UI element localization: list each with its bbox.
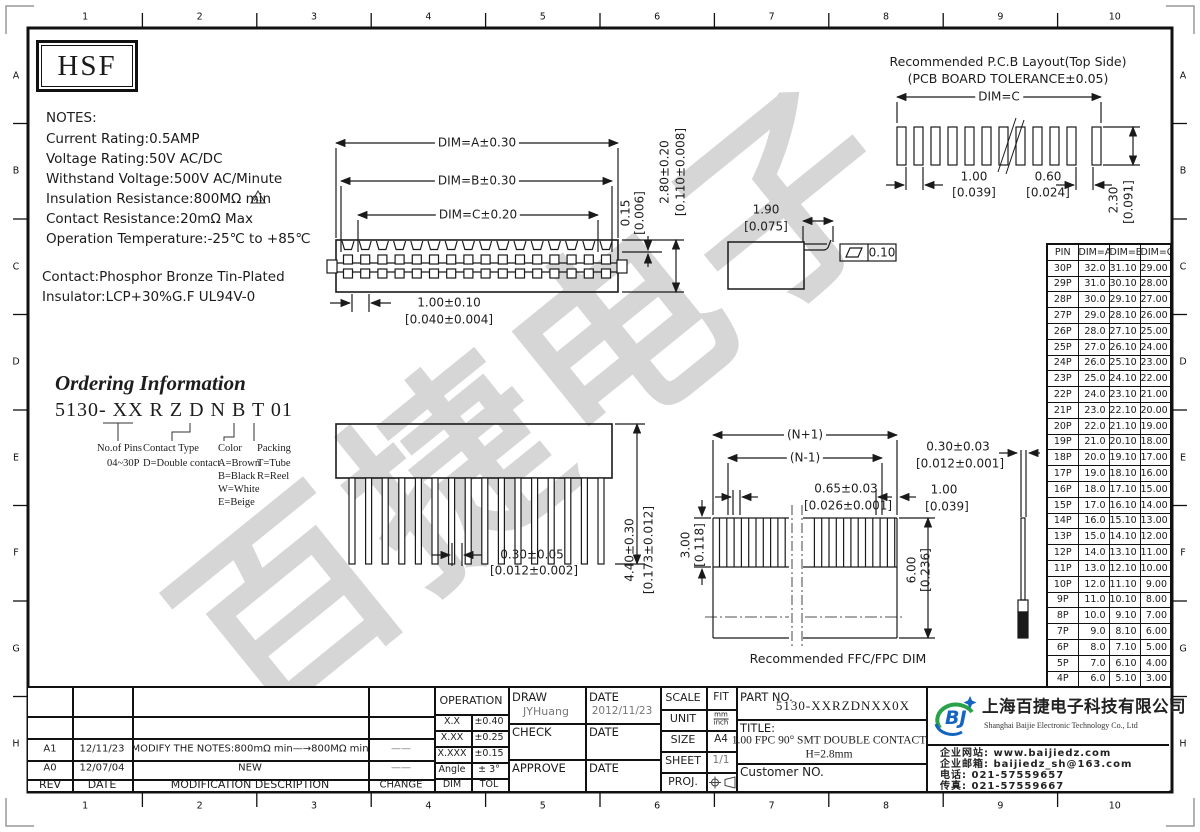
company-fax: 传真: 021-57559667 xyxy=(940,781,1064,792)
pin-dim-cell: 18.0 xyxy=(1078,481,1109,497)
pin-table-body: PINDIM=ADIM=BDIM=C30P32.031.1029.0029P31… xyxy=(1047,244,1171,687)
pin-dim-cell: 7.0 xyxy=(1078,655,1109,671)
pin-count-cell: 15P xyxy=(1047,497,1078,513)
draw-name: JYHuang xyxy=(523,706,569,718)
hsf-logo-text: HSF xyxy=(41,45,133,87)
scale-label: SCALE xyxy=(665,692,700,704)
pin-count-cell: 25P xyxy=(1047,339,1078,355)
pitch-dim-label: 1.00±0.10 xyxy=(417,296,481,309)
rev-header-change: CHANGE xyxy=(380,780,423,791)
customer-no-label: Customer NO. xyxy=(740,766,824,779)
pin-dim-cell: 7.10 xyxy=(1109,639,1140,655)
ordering-contact-label: Contact Type xyxy=(143,443,199,455)
pin-dim-cell: 16.0 xyxy=(1078,513,1109,529)
material-insulator: Insulator:LCP+30%G.F UL94V-0 xyxy=(42,290,255,305)
note-rev-marker: A1 xyxy=(254,196,263,203)
company-logo-icon: BJ xyxy=(932,694,978,738)
pin-dim-cell: 13.0 xyxy=(1078,560,1109,576)
pin-dim-cell: 14.0 xyxy=(1078,545,1109,561)
ordering-color-a: A=Brown xyxy=(218,458,260,470)
pin-dim-cell: 23.0 xyxy=(1078,402,1109,418)
pin-table-row: 6P8.07.105.00 xyxy=(1047,639,1171,655)
ffc-caption: Recommended FFC/FPC DIM xyxy=(750,652,927,666)
rev-a1-id: A1 xyxy=(43,744,56,755)
pin-dim-cell: 11.10 xyxy=(1109,576,1140,592)
pin-dim-cell: 18.00 xyxy=(1140,434,1171,450)
top-view-drawing xyxy=(327,143,684,312)
tol-xxxx-label: X.XXX xyxy=(437,749,466,759)
ordering-contact-value: D=Double contact xyxy=(143,458,220,470)
pcb-width-label: 0.60 xyxy=(1035,170,1062,183)
front-height-label: 4.40±0.30 xyxy=(623,518,636,582)
note-line: Withstand Voltage:500V AC/Minute xyxy=(46,171,282,187)
notes-title: NOTES: xyxy=(46,111,97,126)
note-line: Current Rating:0.5AMP xyxy=(46,131,200,147)
ffc-margin-inch-label: [0.039] xyxy=(925,500,969,513)
pin-count-cell: 14P xyxy=(1047,513,1078,529)
ffc-margin-label: 1.00 xyxy=(931,483,958,496)
rev-a1-change: —— xyxy=(391,744,411,755)
pin-table-row: 5P7.06.104.00 xyxy=(1047,655,1171,671)
pin-dim-cell: 6.10 xyxy=(1109,655,1140,671)
size-label: SIZE xyxy=(671,734,696,746)
pin-dim-cell: 28.00 xyxy=(1140,276,1171,292)
pin-count-cell: 5P xyxy=(1047,655,1078,671)
ffc-exposed-label: 3.00 xyxy=(679,532,692,559)
draw-label: DRAW xyxy=(512,691,547,704)
ffc-pitch-label: 0.65±0.03 xyxy=(814,482,878,495)
pin-dim-cell: 24.00 xyxy=(1140,339,1171,355)
pin-dim-cell: 30.10 xyxy=(1109,276,1140,292)
pin-dim-cell: 8.0 xyxy=(1078,639,1109,655)
ordering-code: 5130- XX R Z D N B T 01 xyxy=(55,399,293,421)
rev-header-rev: REV xyxy=(39,779,61,791)
ordering-color-w: W=White xyxy=(218,484,260,496)
rev-a0-change: —— xyxy=(391,763,411,774)
pin-table-row: 27P29.028.1026.00 xyxy=(1047,308,1171,324)
pin-count-cell: 19P xyxy=(1047,434,1078,450)
pin-dim-cell: 20.10 xyxy=(1109,434,1140,450)
pin-dim-cell: 26.00 xyxy=(1140,308,1171,324)
title-line-2: H=2.8mm xyxy=(805,749,852,762)
pin-dim-cell: 19.0 xyxy=(1078,466,1109,482)
pitch-dim-inch-label: [0.040±0.004] xyxy=(405,313,493,326)
ordering-pins-value: 04~30P xyxy=(107,458,140,470)
unit-inch: inch xyxy=(714,719,729,727)
projection-label: PROJ. xyxy=(668,776,698,788)
height-dim-inch-label: [0.110±0.008] xyxy=(674,128,687,216)
pcb-title-2: (PCB BOARD TOLERANCE±0.05) xyxy=(908,72,1109,86)
pcb-title-1: Recommended P.C.B Layout(Top Side) xyxy=(890,55,1127,69)
pin-dim-cell: 28.0 xyxy=(1078,323,1109,339)
sheet-value: 1/1 xyxy=(713,755,730,767)
ordering-color-label: Color xyxy=(218,443,242,455)
pin-dim-cell: 17.00 xyxy=(1140,450,1171,466)
pin-table-row: 15P17.016.1014.00 xyxy=(1047,497,1171,513)
approve-date-label: DATE xyxy=(589,762,619,775)
pin-table-row: 13P15.014.1012.00 xyxy=(1047,529,1171,545)
pin-count-cell: 13P xyxy=(1047,529,1078,545)
pin-count-cell: 6P xyxy=(1047,639,1078,655)
front-pin-width-inch-label: [0.012±0.002] xyxy=(490,564,578,577)
pin-dim-cell: 19.10 xyxy=(1109,450,1140,466)
pin-dim-cell: 16.10 xyxy=(1109,497,1140,513)
note-line: Operation Temperature:-25℃ to +85℃ xyxy=(46,231,311,247)
title-line-1: 1.00 FPC 90° SMT DOUBLE CONTACT xyxy=(732,735,927,748)
pin-dim-cell: 23.10 xyxy=(1109,387,1140,403)
pin-count-cell: 30P xyxy=(1047,260,1078,276)
company-name-en: Shanghai Baijie Electronic Technology Co… xyxy=(984,722,1138,731)
side-dim-inch-label: [0.075] xyxy=(744,220,788,233)
rev-a0-date: 12/07/04 xyxy=(80,763,125,774)
pin-dim-cell: 6.0 xyxy=(1078,671,1109,687)
pin-count-cell: 4P xyxy=(1047,671,1078,687)
pin-dim-cell: 19.00 xyxy=(1140,418,1171,434)
company-email: 企业邮箱: baijiedz_sh@163.com xyxy=(940,759,1132,770)
pin-table-row: 14P16.015.1013.00 xyxy=(1047,513,1171,529)
pin-dim-cell: 17.10 xyxy=(1109,481,1140,497)
pin-dim-cell: 14.00 xyxy=(1140,497,1171,513)
rev-header-desc: MODIFICATION DESCRIPTION xyxy=(171,779,330,791)
pin-table-row: 19P21.020.1018.00 xyxy=(1047,434,1171,450)
ffc-n-minus-1-label: (N-1) xyxy=(787,451,823,464)
company-name-cn: 上海百捷电子科技有限公司 xyxy=(982,698,1186,716)
draw-date-label: DATE xyxy=(589,691,619,704)
step-dim-label: 0.15 xyxy=(619,200,632,227)
pin-dim-cell: 27.00 xyxy=(1140,292,1171,308)
flatness-value: 0.10 xyxy=(869,246,896,259)
pcb-pitch-label: 1.00 xyxy=(961,170,988,183)
pin-dim-cell: 25.10 xyxy=(1109,355,1140,371)
pin-dim-cell: 22.0 xyxy=(1078,418,1109,434)
pin-table-row: 4P6.05.103.00 xyxy=(1047,671,1171,687)
pin-table-header-row: PINDIM=ADIM=BDIM=C xyxy=(1047,244,1171,260)
pin-dim-cell: 15.10 xyxy=(1109,513,1140,529)
ordering-packing-r: R=Reel xyxy=(257,471,289,483)
pin-table-row: 18P20.019.1017.00 xyxy=(1047,450,1171,466)
pin-dim-cell: 13.10 xyxy=(1109,545,1140,561)
pin-dim-cell: 10.10 xyxy=(1109,592,1140,608)
pcb-pitch-inch-label: [0.039] xyxy=(952,186,996,199)
pcb-width-inch-label: [0.024] xyxy=(1026,186,1070,199)
pin-dim-cell: 9.10 xyxy=(1109,608,1140,624)
pin-dim-cell: 20.0 xyxy=(1078,450,1109,466)
pin-table-row: 11P13.012.1010.00 xyxy=(1047,560,1171,576)
front-view-drawing xyxy=(336,424,645,566)
pin-count-cell: 29P xyxy=(1047,276,1078,292)
pin-table-row: 28P30.029.1027.00 xyxy=(1047,292,1171,308)
front-height-inch-label: [0.173±0.012] xyxy=(642,506,655,594)
pin-count-cell: 22P xyxy=(1047,387,1078,403)
pin-count-cell: 9P xyxy=(1047,592,1078,608)
material-contact: Contact:Phosphor Bronze Tin-Plated xyxy=(42,270,285,285)
pin-dim-cell: 12.10 xyxy=(1109,560,1140,576)
pin-count-cell: 11P xyxy=(1047,560,1078,576)
rev-a1-desc: MODIFY THE NOTES:800mΩ min—→800MΩ min xyxy=(131,744,368,755)
ordering-color-b: B=Black xyxy=(218,471,255,483)
pin-table-row: 8P10.09.107.00 xyxy=(1047,608,1171,624)
pin-dim-cell: 11.0 xyxy=(1078,592,1109,608)
unit-value: mm inch xyxy=(714,712,729,727)
ordering-color-e: E=Beige xyxy=(218,497,255,509)
pin-table-row: 9P11.010.108.00 xyxy=(1047,592,1171,608)
tol-tol-header: TOL xyxy=(480,780,499,790)
pin-dim-cell: 17.0 xyxy=(1078,497,1109,513)
pin-dim-cell: 29.10 xyxy=(1109,292,1140,308)
pin-dim-cell: 29.0 xyxy=(1078,308,1109,324)
pin-dim-cell: 9.00 xyxy=(1140,576,1171,592)
pin-count-cell: 8P xyxy=(1047,608,1078,624)
pcb-height-label: 2.30 xyxy=(1107,187,1120,214)
pin-table-header: DIM=C xyxy=(1140,244,1171,260)
pin-count-cell: 24P xyxy=(1047,355,1078,371)
front-pin-width-label: 0.30±0.05 xyxy=(500,548,564,561)
pin-table-row: 10P12.011.109.00 xyxy=(1047,576,1171,592)
pin-dim-cell: 10.0 xyxy=(1078,608,1109,624)
pin-table-header: DIM=A xyxy=(1078,244,1109,260)
pin-dim-cell: 8.00 xyxy=(1140,592,1171,608)
pin-dim-cell: 16.00 xyxy=(1140,466,1171,482)
pin-dim-cell: 22.00 xyxy=(1140,371,1171,387)
title-label: TITLE: xyxy=(740,722,775,735)
tol-xxx-value: ±0.25 xyxy=(474,733,503,743)
pin-dim-cell: 4.00 xyxy=(1140,655,1171,671)
pin-dim-cell: 26.0 xyxy=(1078,355,1109,371)
projection-symbol-icon xyxy=(708,776,736,789)
pin-count-cell: 16P xyxy=(1047,481,1078,497)
rev-a1-date: 12/11/23 xyxy=(80,744,125,755)
pin-dim-cell: 25.00 xyxy=(1140,323,1171,339)
ordering-packing-t: T=Tube xyxy=(257,458,291,470)
tol-angle-label: Angle xyxy=(438,765,465,775)
pin-dim-cell: 20.00 xyxy=(1140,402,1171,418)
pin-table-row: 26P28.027.1025.00 xyxy=(1047,323,1171,339)
pin-dim-cell: 27.0 xyxy=(1078,339,1109,355)
rev-a0-id: A0 xyxy=(43,763,56,774)
pin-table-row: 7P9.08.106.00 xyxy=(1047,624,1171,640)
pin-dim-cell: 8.10 xyxy=(1109,624,1140,640)
pin-dim-cell: 12.0 xyxy=(1078,576,1109,592)
pin-count-cell: 12P xyxy=(1047,545,1078,561)
ffc-stiffener-label: 6.00 xyxy=(905,557,918,584)
scale-value: FIT xyxy=(713,692,729,704)
pcb-layout-drawing xyxy=(886,97,1140,190)
pin-table-row: 30P32.031.1029.00 xyxy=(1047,260,1171,276)
svg-text:BJ: BJ xyxy=(945,707,967,729)
pin-table-row: 24P26.025.1023.00 xyxy=(1047,355,1171,371)
rev-header-date: DATE xyxy=(88,779,117,791)
pin-dim-cell: 30.0 xyxy=(1078,292,1109,308)
title-block: A1 12/11/23 MODIFY THE NOTES:800mΩ min—→… xyxy=(28,686,1169,791)
check-label: CHECK xyxy=(512,726,552,739)
pin-table-header: DIM=B xyxy=(1109,244,1140,260)
pin-table-row: 21P23.022.1020.00 xyxy=(1047,402,1171,418)
tol-angle-value: ± 3° xyxy=(478,765,500,775)
approve-label: APPROVE xyxy=(512,762,566,775)
check-date-label: DATE xyxy=(589,726,619,739)
pin-dim-cell: 9.0 xyxy=(1078,624,1109,640)
pin-count-cell: 21P xyxy=(1047,402,1078,418)
pin-table-row: 25P27.026.1024.00 xyxy=(1047,339,1171,355)
ordering-packing-label: Packing xyxy=(257,443,291,455)
tol-xx-value: ±0.40 xyxy=(474,717,503,727)
part-no-value: 5130-XXRZDNXX0X xyxy=(776,699,910,713)
company-website: 企业网站: www.baijiedz.com xyxy=(940,748,1111,759)
ffc-thickness-label: 0.30±0.03 xyxy=(926,440,990,453)
pin-count-cell: 10P xyxy=(1047,576,1078,592)
pin-dim-cell: 31.0 xyxy=(1078,276,1109,292)
company-tel: 电话: 021-57559657 xyxy=(940,770,1064,781)
pin-dim-cell: 24.10 xyxy=(1109,371,1140,387)
tol-xxxx-value: ±0.15 xyxy=(474,749,503,759)
ffc-stiffener-inch-label: [0.236] xyxy=(919,548,932,592)
ordering-pins-label: No.of Pins xyxy=(97,443,142,455)
pin-table-row: 16P18.017.1015.00 xyxy=(1047,481,1171,497)
pcb-dim-c-label: DIM=C xyxy=(975,90,1023,103)
hsf-logo: HSF xyxy=(36,40,138,92)
ffc-n-plus-1-label: (N+1) xyxy=(784,428,826,441)
pin-dim-cell: 24.0 xyxy=(1078,387,1109,403)
ordering-title: Ordering Information xyxy=(55,372,246,395)
pin-dim-cell: 6.00 xyxy=(1140,624,1171,640)
pin-dim-cell: 5.00 xyxy=(1140,639,1171,655)
step-dim-inch-label: [0.006] xyxy=(633,191,646,235)
pin-dim-cell: 21.00 xyxy=(1140,387,1171,403)
pin-dim-cell: 10.00 xyxy=(1140,560,1171,576)
pin-dim-cell: 27.10 xyxy=(1109,323,1140,339)
note-line: Insulation Resistance:800MΩ min xyxy=(46,191,271,207)
dim-c-label: DIM=C±0.20 xyxy=(436,208,520,221)
size-value: A4 xyxy=(714,734,728,746)
pin-table-row: 20P22.021.1019.00 xyxy=(1047,418,1171,434)
flatness-symbol-icon xyxy=(846,248,862,257)
pin-dim-cell: 28.10 xyxy=(1109,308,1140,324)
pin-dim-cell: 13.00 xyxy=(1140,513,1171,529)
note-line: Contact Resistance:20mΩ Max xyxy=(46,211,253,227)
pin-table-header: PIN xyxy=(1047,244,1078,260)
sheet-label: SHEET xyxy=(665,755,701,767)
pin-dim-cell: 7.00 xyxy=(1140,608,1171,624)
pin-count-cell: 18P xyxy=(1047,450,1078,466)
pin-count-cell: 28P xyxy=(1047,292,1078,308)
dim-b-label: DIM=B±0.30 xyxy=(435,174,519,187)
ffc-pitch-inch-label: [0.026±0.001] xyxy=(804,499,892,512)
pin-table-row: 17P19.018.1016.00 xyxy=(1047,466,1171,482)
pin-dim-cell: 15.00 xyxy=(1140,481,1171,497)
unit-label: UNIT xyxy=(670,713,696,725)
pin-dim-cell: 23.00 xyxy=(1140,355,1171,371)
pin-table-row: 23P25.024.1022.00 xyxy=(1047,371,1171,387)
pin-count-cell: 27P xyxy=(1047,308,1078,324)
height-dim-label: 2.80±0.20 xyxy=(658,140,671,204)
pin-dim-cell: 26.10 xyxy=(1109,339,1140,355)
pin-table-row: 22P24.023.1021.00 xyxy=(1047,387,1171,403)
pin-dim-cell: 21.10 xyxy=(1109,418,1140,434)
pin-table-row: 12P14.013.1011.00 xyxy=(1047,545,1171,561)
tol-xx-label: X.X xyxy=(444,717,460,727)
pin-dim-cell: 21.0 xyxy=(1078,434,1109,450)
pin-dim-cell: 31.10 xyxy=(1109,260,1140,276)
pin-dim-cell: 14.10 xyxy=(1109,529,1140,545)
dim-a-label: DIM=A±0.30 xyxy=(435,136,519,149)
ffc-thickness-inch-label: [0.012±0.001] xyxy=(916,457,1004,470)
ffc-exposed-inch-label: [0.118] xyxy=(693,523,706,567)
draw-date-value: 2012/11/23 xyxy=(592,706,653,718)
pin-count-cell: 20P xyxy=(1047,418,1078,434)
side-dim-label: 1.90 xyxy=(753,203,780,216)
pin-dim-cell: 29.00 xyxy=(1140,260,1171,276)
tol-xxx-label: X.XX xyxy=(441,733,464,743)
pcb-height-inch-label: [0.091] xyxy=(1122,180,1135,224)
drawing-sheet: 百捷电子 xyxy=(0,0,1200,832)
pin-count-cell: 23P xyxy=(1047,371,1078,387)
pin-dim-cell: 12.00 xyxy=(1140,529,1171,545)
pin-dim-cell: 5.10 xyxy=(1109,671,1140,687)
operation-title: OPERATION xyxy=(440,695,503,707)
pin-dim-cell: 15.0 xyxy=(1078,529,1109,545)
rev-a0-desc: NEW xyxy=(238,763,262,774)
pin-dim-cell: 32.0 xyxy=(1078,260,1109,276)
pin-dimension-table: PINDIM=ADIM=BDIM=C30P32.031.1029.0029P31… xyxy=(1046,243,1172,688)
pin-dim-cell: 18.10 xyxy=(1109,466,1140,482)
pin-table-row: 29P31.030.1028.00 xyxy=(1047,276,1171,292)
pin-count-cell: 17P xyxy=(1047,466,1078,482)
note-line: Voltage Rating:50V AC/DC xyxy=(46,151,223,167)
pin-count-cell: 7P xyxy=(1047,624,1078,640)
tol-dim-header: DIM xyxy=(443,780,461,790)
pin-dim-cell: 11.00 xyxy=(1140,545,1171,561)
pin-dim-cell: 25.0 xyxy=(1078,371,1109,387)
pin-count-cell: 26P xyxy=(1047,323,1078,339)
pin-dim-cell: 22.10 xyxy=(1109,402,1140,418)
pin-dim-cell: 3.00 xyxy=(1140,671,1171,687)
